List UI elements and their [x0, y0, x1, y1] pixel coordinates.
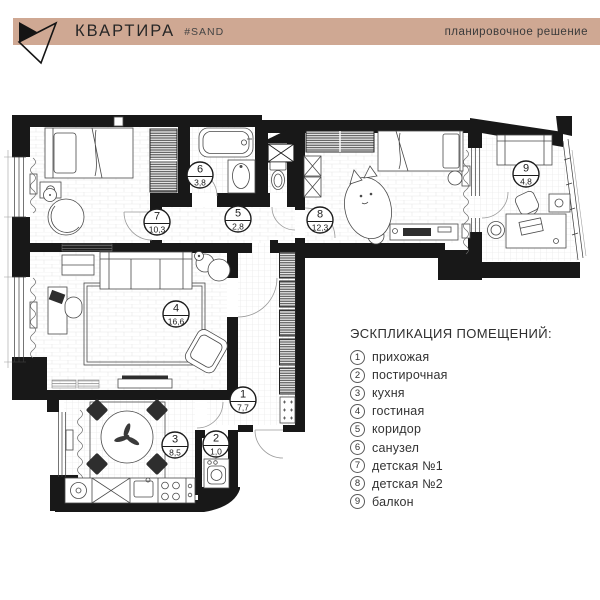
wardrobe [280, 310, 296, 336]
stool [488, 222, 505, 239]
legend-item: 4гостиная [350, 402, 565, 420]
legend-item: 2постирочная [350, 366, 565, 384]
svg-text:12,3: 12,3 [312, 223, 329, 233]
wardrobe [280, 368, 296, 394]
furniture-laundry [204, 459, 229, 488]
legend-list: 1прихожая2постирочная3кухня4гостиная5кор… [350, 348, 565, 511]
svg-text:10,3: 10,3 [149, 225, 166, 235]
legend-item-number: 1 [350, 350, 365, 365]
floor-lamp [208, 259, 230, 281]
window-livingroom [12, 277, 26, 362]
svg-text:8: 8 [317, 209, 323, 221]
legend-item: 7детская №1 [350, 457, 565, 475]
pillow [443, 134, 459, 168]
dimension-line [4, 150, 12, 368]
legend: ЭСКПЛИКАЦИЯ ПОМЕЩЕНИЙ: 1прихожая2постиро… [350, 326, 565, 511]
wardrobe [280, 252, 296, 278]
svg-text:1: 1 [240, 389, 246, 401]
legend-item-number: 5 [350, 422, 365, 437]
tv-console [118, 379, 172, 388]
legend-item-label: детская №2 [372, 477, 443, 491]
legend-item: 3кухня [350, 384, 565, 402]
window-childroom1 [12, 157, 26, 217]
legend-item-number: 9 [350, 494, 365, 509]
legend-item-number: 2 [350, 368, 365, 383]
legend-item: 9балкон [350, 493, 565, 511]
legend-item-number: 4 [350, 404, 365, 419]
svg-text:7,7: 7,7 [237, 403, 249, 413]
room-badge-childroom2: 812,3 [307, 207, 333, 233]
svg-text:3,8: 3,8 [194, 178, 206, 188]
radiator-icon [78, 380, 99, 388]
legend-item-number: 8 [350, 476, 365, 491]
legend-item: 1прихожая [350, 348, 565, 366]
legend-item-label: гостиная [372, 404, 424, 418]
legend-item-label: постирочная [372, 368, 448, 382]
app-title: КВАРТИРА [75, 22, 175, 41]
radiator-icon [62, 244, 112, 251]
svg-text:2,8: 2,8 [232, 222, 244, 232]
legend-item-label: кухня [372, 386, 405, 400]
legend-item-label: коридор [372, 422, 421, 436]
svg-text:9: 9 [523, 163, 529, 175]
svg-text:3: 3 [172, 434, 178, 446]
room-badge-childroom1: 710,3 [144, 209, 170, 235]
wardrobe [280, 339, 296, 365]
door-entrance [255, 430, 283, 458]
pillow [54, 133, 76, 173]
hanging-chair [48, 199, 84, 235]
legend-item-label: санузел [372, 441, 419, 455]
toilet [270, 162, 286, 170]
legend-item-number: 7 [350, 458, 365, 473]
room-badge-bathroom: 63,8 [187, 162, 213, 188]
shelf [549, 194, 570, 212]
legend-item-number: 6 [350, 440, 365, 455]
laptop [403, 228, 431, 236]
paper-plane-logo [12, 16, 64, 68]
room-badge-corridor: 52,8 [225, 206, 251, 232]
legend-item: 8детская №2 [350, 475, 565, 493]
header-bar: КВАРТИРА #SAND планировочное решение [13, 18, 600, 45]
room-badge-hallway: 17,7 [230, 387, 256, 413]
room-badge-kitchen: 38,5 [162, 432, 188, 458]
svg-text:16,6: 16,6 [168, 317, 185, 327]
project-hashtag: #SAND [184, 26, 224, 38]
legend-item: 5коридор [350, 420, 565, 438]
room-badge-balcony: 94,8 [513, 161, 539, 187]
vent [114, 117, 123, 126]
svg-text:4: 4 [173, 303, 179, 315]
chair [65, 297, 82, 318]
legend-title: ЭСКПЛИКАЦИЯ ПОМЕЩЕНИЙ: [350, 326, 565, 341]
room-badge-livingroom: 416,6 [163, 301, 189, 327]
svg-text:8,5: 8,5 [169, 448, 181, 458]
svg-text:4,8: 4,8 [520, 177, 532, 187]
radiator-icon [66, 430, 73, 450]
room-badge-laundry: 21,0 [203, 431, 229, 457]
svg-text:5: 5 [235, 208, 241, 220]
svg-text:6: 6 [197, 164, 203, 176]
svg-text:7: 7 [154, 211, 160, 223]
svg-text:2: 2 [213, 433, 219, 445]
legend-item-label: балкон [372, 495, 414, 509]
wardrobe [280, 281, 296, 307]
header-subtitle: планировочное решение [445, 26, 588, 38]
svg-text:1,0: 1,0 [210, 447, 222, 457]
legend-item-number: 3 [350, 386, 365, 401]
legend-item-label: прихожая [372, 350, 429, 364]
legend-item: 6санузел [350, 438, 565, 456]
sink-counter [228, 160, 255, 193]
legend-item-label: детская №1 [372, 459, 443, 473]
pouf [448, 171, 462, 185]
sofa [100, 252, 192, 289]
radiator-icon [52, 380, 76, 388]
tv [122, 376, 168, 380]
